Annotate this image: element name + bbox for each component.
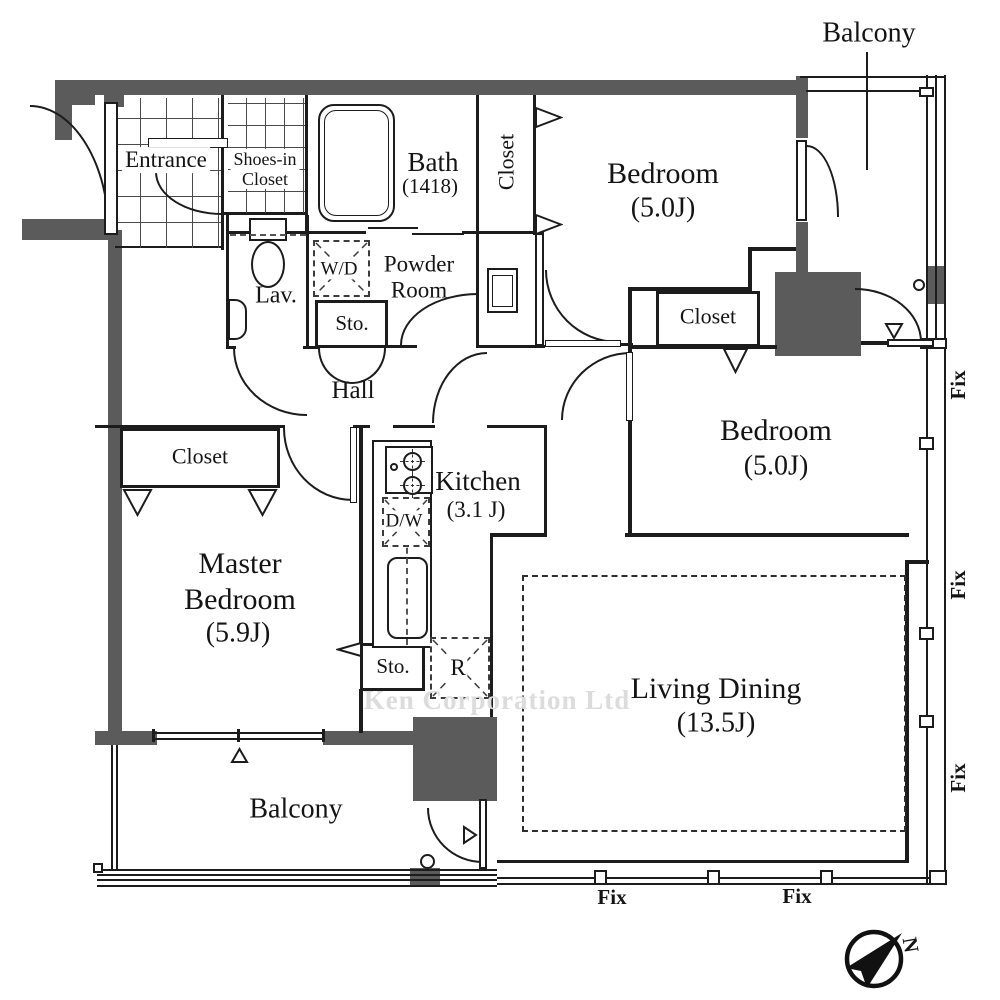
room-label-entrance: Entrance bbox=[122, 147, 210, 173]
door-leaf[interactable] bbox=[104, 102, 118, 235]
railing-line bbox=[800, 76, 946, 78]
room-label-refrigerator: R bbox=[448, 655, 467, 681]
wall bbox=[490, 533, 547, 537]
watermark: Ken Corporation Ltd bbox=[364, 685, 631, 715]
wall bbox=[535, 233, 544, 346]
room-label-bedroom2: Bedroom bbox=[720, 414, 832, 448]
room-label-closet: Closet bbox=[495, 134, 520, 190]
room-size-master-bedroom: (5.9J) bbox=[206, 617, 271, 648]
window-tab bbox=[594, 870, 607, 885]
hanger-pipe-icon bbox=[247, 488, 278, 517]
door-leaf[interactable] bbox=[796, 140, 807, 221]
wall bbox=[71, 95, 95, 105]
window-line bbox=[926, 75, 928, 885]
wall bbox=[359, 689, 363, 733]
pillar bbox=[413, 717, 497, 801]
door-leaf[interactable] bbox=[545, 340, 621, 347]
room-size-bedroom1: (5.0J) bbox=[631, 192, 696, 223]
window-tab bbox=[919, 715, 934, 728]
fix-window-label: Fix bbox=[947, 763, 971, 792]
lav-dash-line bbox=[230, 234, 306, 236]
burner-cross bbox=[412, 473, 413, 498]
room-label-dishwasher: D/W bbox=[386, 510, 423, 531]
powder-basin-inner bbox=[492, 275, 513, 307]
right-triangle-icon bbox=[462, 825, 478, 845]
wall bbox=[628, 287, 632, 354]
left-triangle-icon bbox=[336, 641, 363, 658]
floor-plan: N Ken Corporation Ltd Entrance Shoes-in … bbox=[0, 0, 1000, 1000]
room-label-living-dining: Living Dining bbox=[631, 672, 802, 706]
drain-circle bbox=[913, 279, 925, 291]
door-arc bbox=[432, 352, 487, 423]
fix-window-label: Fix bbox=[782, 885, 811, 909]
wall bbox=[95, 731, 157, 745]
room-label-washer-dryer: W/D bbox=[321, 258, 358, 279]
railing-line bbox=[116, 745, 118, 871]
room-label-kitchen: Kitchen bbox=[435, 466, 520, 496]
room-label-shoes-in-closet: Shoes-in Closet bbox=[231, 149, 300, 189]
wall bbox=[55, 80, 800, 95]
floor-edge bbox=[497, 860, 909, 863]
hanger-pipe-icon bbox=[534, 106, 563, 129]
toilet-tank bbox=[249, 218, 287, 241]
room-label-hall: Hall bbox=[331, 377, 374, 405]
railing-line bbox=[97, 869, 497, 871]
burner-icon bbox=[390, 463, 398, 471]
wall bbox=[487, 425, 547, 428]
room-label-bedroom1: Bedroom bbox=[607, 157, 719, 191]
window-tab bbox=[919, 437, 934, 450]
hanger-pipe-icon bbox=[122, 488, 153, 517]
railing-line bbox=[111, 745, 113, 871]
burner-cross bbox=[412, 449, 413, 474]
window-tab bbox=[93, 863, 103, 873]
room-label-closet-master: Closet bbox=[172, 445, 228, 470]
window-tab bbox=[929, 870, 947, 885]
wall bbox=[628, 418, 632, 537]
wall bbox=[750, 247, 796, 251]
hanger-pipe-icon bbox=[722, 347, 749, 374]
wall bbox=[625, 533, 909, 537]
fix-window-label: Fix bbox=[947, 370, 971, 399]
room-label-powder-room: Powder Room bbox=[384, 251, 454, 303]
wall bbox=[476, 95, 479, 234]
room-label-storage-hall: Sto. bbox=[335, 312, 368, 336]
wall bbox=[306, 215, 309, 349]
window-line bbox=[497, 883, 946, 885]
railing-line bbox=[935, 75, 937, 345]
window-tab bbox=[820, 870, 833, 885]
wall bbox=[748, 247, 752, 291]
wall bbox=[393, 425, 435, 428]
lav-basin bbox=[228, 299, 247, 340]
room-label-bath: Bath bbox=[408, 147, 459, 177]
door-leaf[interactable] bbox=[479, 799, 487, 869]
wall bbox=[796, 222, 808, 274]
wall bbox=[796, 76, 808, 138]
fix-window-label: Fix bbox=[597, 886, 626, 910]
room-size-living-dining: (13.5J) bbox=[677, 707, 756, 738]
room-size-bath: (1418) bbox=[402, 175, 458, 199]
window-tab bbox=[919, 87, 934, 97]
window-tick bbox=[152, 729, 155, 742]
pillar bbox=[775, 272, 861, 356]
room-label-closet-bedroom2: Closet bbox=[680, 305, 736, 330]
door-arc bbox=[561, 352, 631, 420]
railing-line bbox=[97, 879, 497, 881]
room-label-lavatory: Lav. bbox=[255, 283, 297, 310]
window-tab bbox=[919, 627, 934, 640]
wall bbox=[359, 428, 363, 645]
hanger-pipe-icon bbox=[534, 213, 563, 236]
window-tick bbox=[237, 729, 240, 742]
railing-line bbox=[97, 874, 497, 876]
door-arc bbox=[233, 348, 307, 416]
wall bbox=[388, 345, 417, 348]
toilet-bowl bbox=[251, 241, 285, 288]
wall bbox=[323, 731, 415, 745]
up-triangle-icon bbox=[230, 747, 249, 764]
door-arc bbox=[807, 145, 839, 217]
railing-line bbox=[97, 885, 497, 887]
wall bbox=[544, 428, 547, 536]
door-arc bbox=[30, 105, 110, 235]
window-tab bbox=[707, 870, 720, 885]
sliding-door[interactable] bbox=[412, 233, 464, 235]
balcony-leader-line bbox=[866, 52, 868, 170]
door-leaf[interactable] bbox=[350, 427, 357, 503]
window-tick bbox=[322, 729, 325, 742]
room-label-master-bedroom: Master Bedroom bbox=[184, 546, 296, 618]
drain-circle bbox=[420, 854, 435, 869]
fix-window-label: Fix bbox=[947, 570, 971, 599]
bathtub-inner bbox=[324, 110, 389, 216]
door-leaf[interactable] bbox=[887, 339, 934, 347]
room-size-bedroom2: (5.0J) bbox=[744, 450, 809, 481]
room-label-balcony-south: Balcony bbox=[249, 793, 342, 824]
room-label-balcony-east: Balcony bbox=[822, 17, 915, 48]
room-size-kitchen: (3.1 J) bbox=[447, 497, 506, 523]
door-arc bbox=[283, 428, 353, 501]
door-arc bbox=[545, 270, 618, 343]
door-leaf[interactable] bbox=[626, 352, 633, 421]
sliding-door[interactable] bbox=[368, 227, 418, 229]
room-label-storage-kitchen: Sto. bbox=[376, 655, 409, 679]
down-triangle-icon bbox=[884, 322, 904, 340]
window-line bbox=[497, 877, 946, 879]
